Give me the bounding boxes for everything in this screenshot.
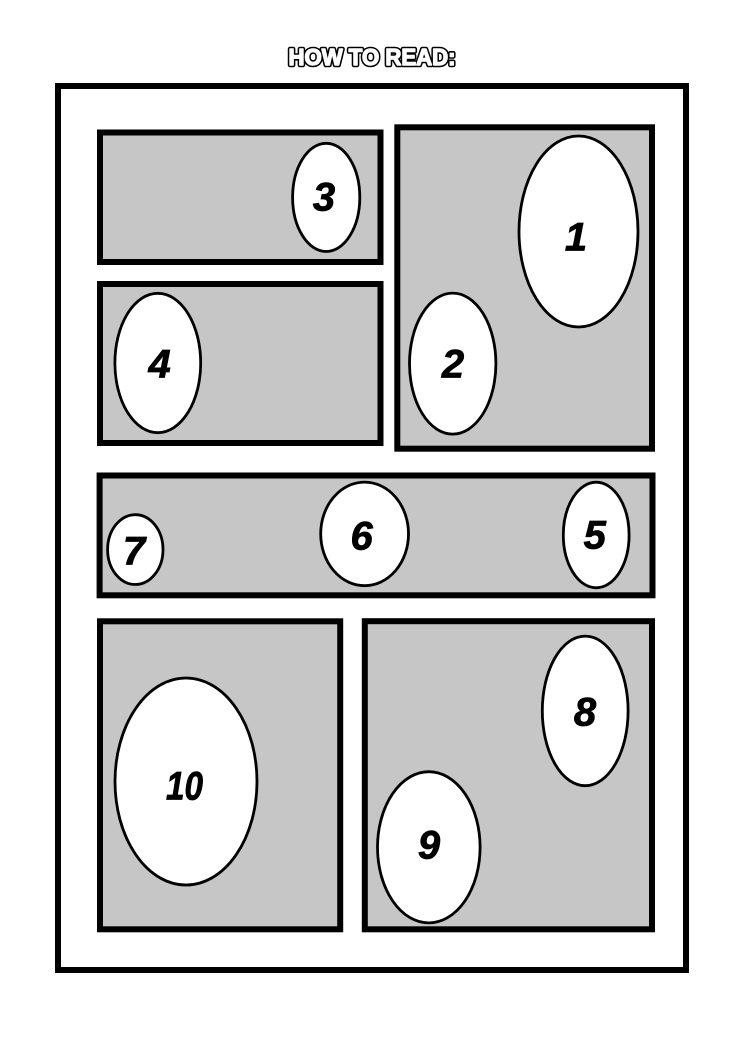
svg-text:3: 3: [313, 176, 335, 220]
svg-text:7: 7: [123, 530, 147, 574]
svg-text:10: 10: [166, 765, 203, 809]
svg-text:4: 4: [147, 342, 170, 386]
svg-text:2: 2: [441, 343, 464, 387]
svg-text:8: 8: [574, 691, 597, 735]
svg-text:1: 1: [565, 216, 587, 260]
svg-text:6: 6: [350, 514, 373, 558]
svg-text:5: 5: [584, 514, 607, 558]
svg-text:HOW TO READ:: HOW TO READ:: [289, 44, 456, 70]
svg-text:9: 9: [418, 824, 441, 868]
